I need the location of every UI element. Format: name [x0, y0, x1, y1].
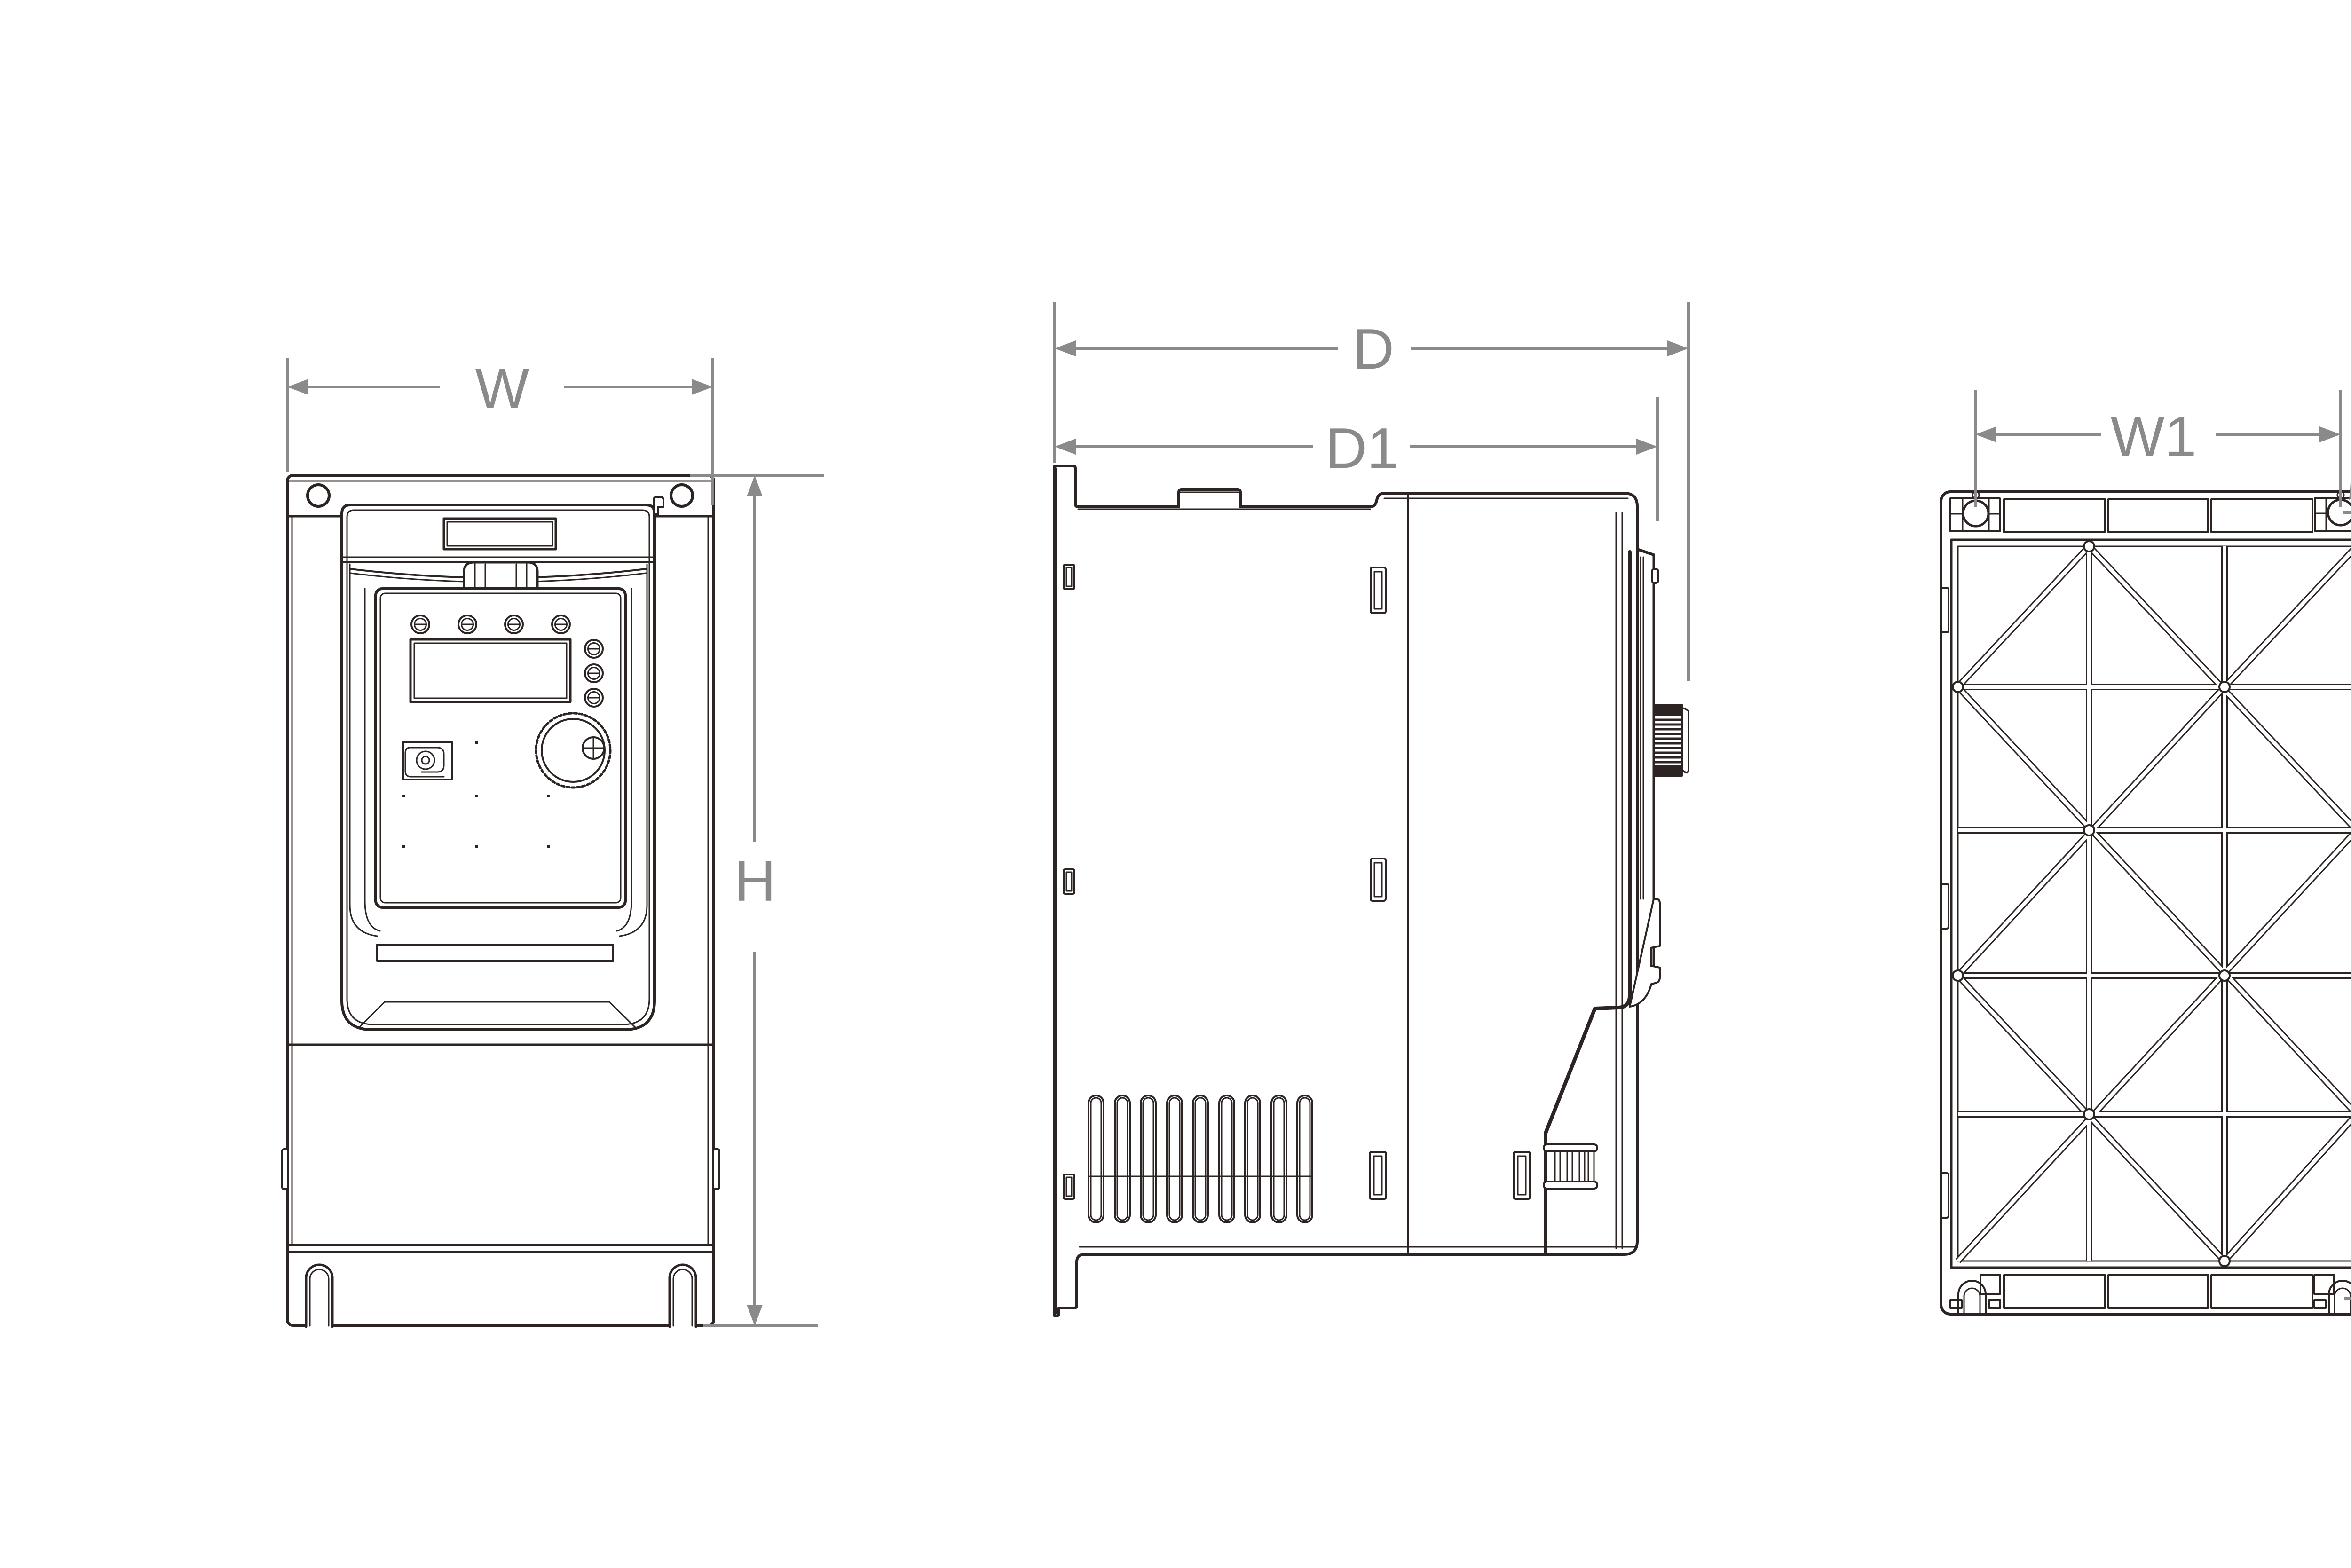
- svg-text:W1: W1: [2111, 404, 2197, 468]
- svg-text:D: D: [1353, 317, 1394, 381]
- svg-text:W: W: [475, 356, 529, 420]
- svg-text:H: H: [734, 849, 776, 913]
- svg-text:D1: D1: [1325, 416, 1399, 480]
